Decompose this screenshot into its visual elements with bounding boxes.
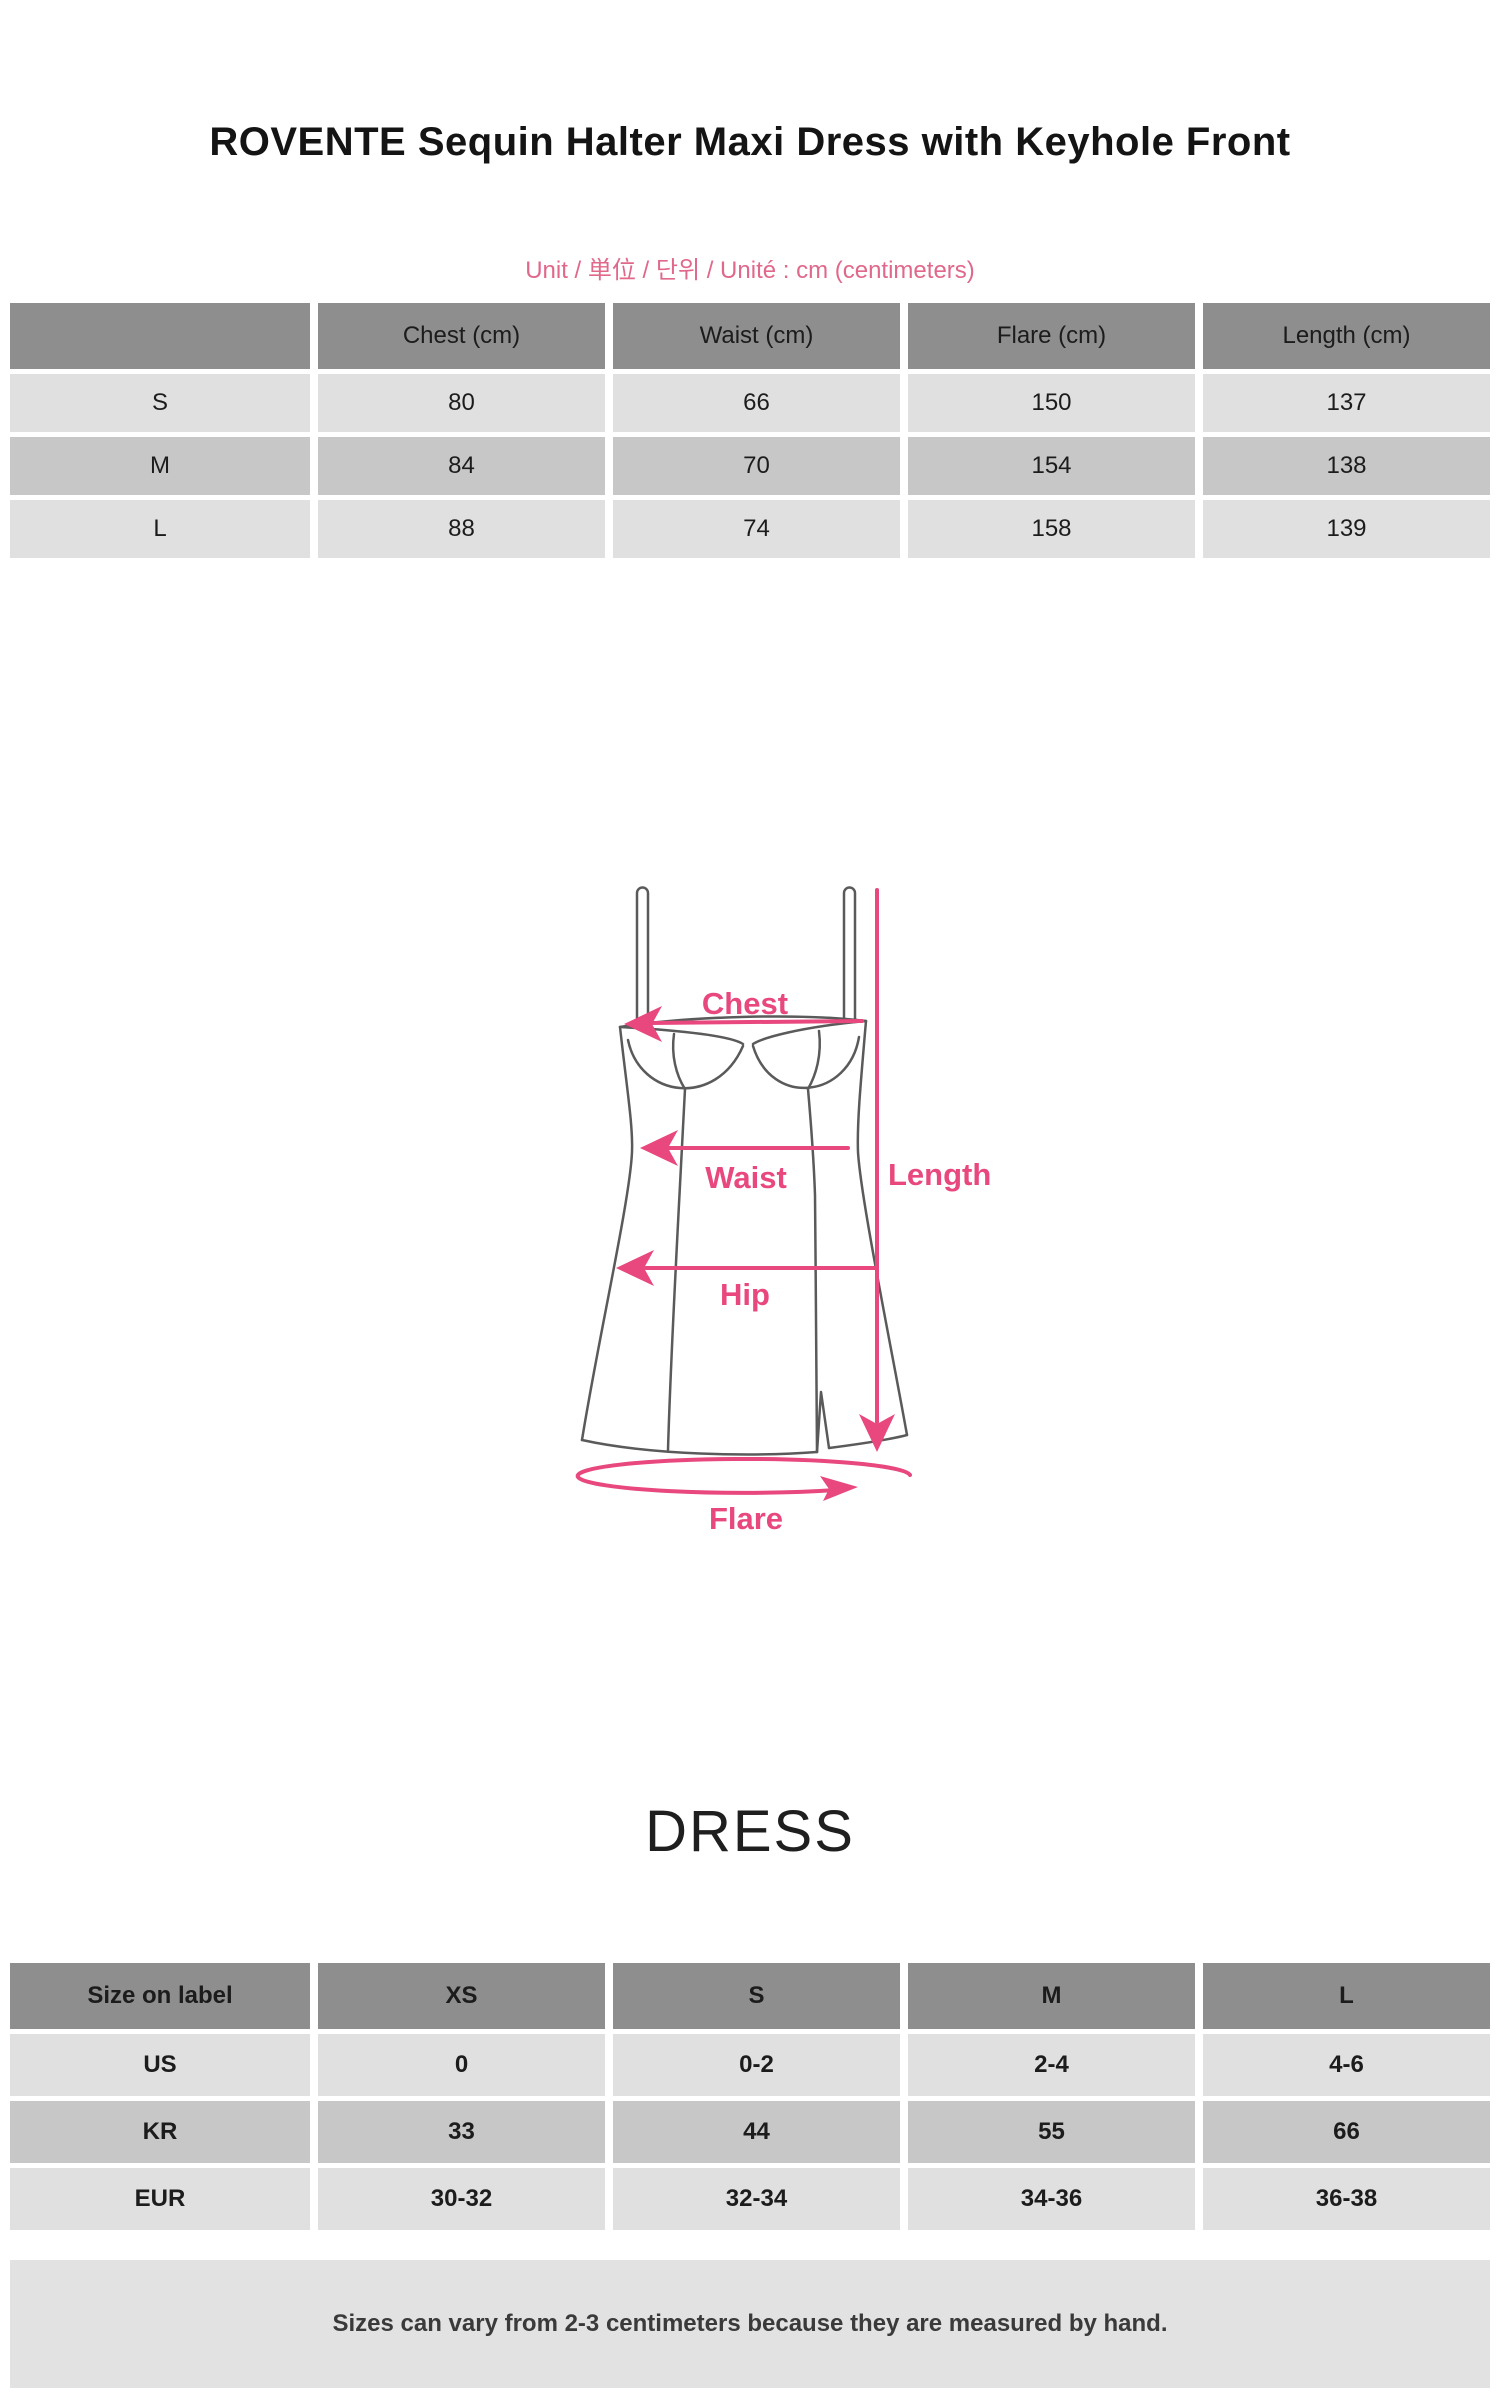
table-cell: 4-6 [1203,2034,1490,2096]
table-row: US00-22-44-6 [10,2034,1490,2096]
hem-left [582,1440,817,1454]
footer-note: Sizes can vary from 2-3 centimeters beca… [332,2310,1167,2338]
dress-measurement-diagram: Chest Waist Hip Length Flare [540,860,1020,1560]
chest-label: Chest [702,986,788,1021]
column-header: Length (cm) [1203,303,1490,369]
neckline-right [753,1021,866,1044]
unit-note: Unit / 単位 / 단위 / Unité : cm (centimeters… [0,250,1500,285]
table-cell: 34-36 [908,2168,1195,2230]
table-row: KR33445566 [10,2101,1490,2163]
hem-right [829,1435,907,1448]
cup-seam-right [808,1031,820,1089]
table-cell: 55 [908,2101,1195,2163]
side-seam-right [858,1021,907,1435]
table-cell: 139 [1203,500,1490,558]
table-cell: 150 [908,374,1195,432]
table-cell: 154 [908,437,1195,495]
cup-right [753,1037,859,1088]
table-cell: 32-34 [613,2168,900,2230]
table-cell: 44 [613,2101,900,2163]
column-header [10,303,310,369]
table-cell: 2-4 [908,2034,1195,2096]
table-cell: 30-32 [318,2168,605,2230]
chest-arrow [650,1021,862,1023]
table-row: L8874158139 [10,500,1490,558]
cup-seam-left [673,1034,685,1089]
waist-label: Waist [705,1160,787,1195]
table-cell: 80 [318,374,605,432]
header-row: Chest (cm)Waist (cm)Flare (cm)Length (cm… [10,303,1490,369]
princess-seam-right [808,1089,817,1452]
table-row: M8470154138 [10,437,1490,495]
flare-arrowhead-icon [820,1476,858,1501]
table-cell: 84 [318,437,605,495]
column-header: Chest (cm) [318,303,605,369]
column-header: M [908,1963,1195,2029]
strap-left [637,888,648,1023]
table-cell: 88 [318,500,605,558]
section-heading: DRESS [0,1798,1500,1865]
column-header: L [1203,1963,1490,2029]
column-header: XS [318,1963,605,2029]
page-title: ROVENTE Sequin Halter Maxi Dress with Ke… [0,120,1500,165]
row-label: US [10,2034,310,2096]
table-cell: 0-2 [613,2034,900,2096]
size-conversion-section: Size on labelXSSMLUS00-22-44-6KR33445566… [2,1958,1498,2235]
table-cell: 70 [613,437,900,495]
table-cell: 36-38 [1203,2168,1490,2230]
row-label: EUR [10,2168,310,2230]
row-label: S [10,374,310,432]
cup-left [628,1040,743,1088]
table-cell: 66 [1203,2101,1490,2163]
table-cell: 33 [318,2101,605,2163]
column-header: Flare (cm) [908,303,1195,369]
flare-arrow [578,1459,910,1493]
measurement-table-section: Chest (cm)Waist (cm)Flare (cm)Length (cm… [2,298,1498,563]
column-header: Waist (cm) [613,303,900,369]
table-cell: 158 [908,500,1195,558]
table-cell: 138 [1203,437,1490,495]
measurement-table: Chest (cm)Waist (cm)Flare (cm)Length (cm… [2,298,1498,563]
table-cell: 74 [613,500,900,558]
column-header: S [613,1963,900,2029]
strap-right [844,888,855,1023]
row-label: M [10,437,310,495]
side-seam-left [582,1027,632,1440]
hip-label: Hip [720,1277,770,1312]
table-cell: 0 [318,2034,605,2096]
column-header: Size on label [10,1963,310,2029]
length-label: Length [888,1157,991,1192]
table-cell: 66 [613,374,900,432]
header-row: Size on labelXSSML [10,1963,1490,2029]
flare-label: Flare [709,1501,783,1536]
footer-note-band: Sizes can vary from 2-3 centimeters beca… [10,2260,1490,2388]
row-label: KR [10,2101,310,2163]
hem-slit [817,1392,829,1452]
table-cell: 137 [1203,374,1490,432]
row-label: L [10,500,310,558]
size-conversion-table: Size on labelXSSMLUS00-22-44-6KR33445566… [2,1958,1498,2235]
table-row: EUR30-3232-3434-3636-38 [10,2168,1490,2230]
table-row: S8066150137 [10,374,1490,432]
